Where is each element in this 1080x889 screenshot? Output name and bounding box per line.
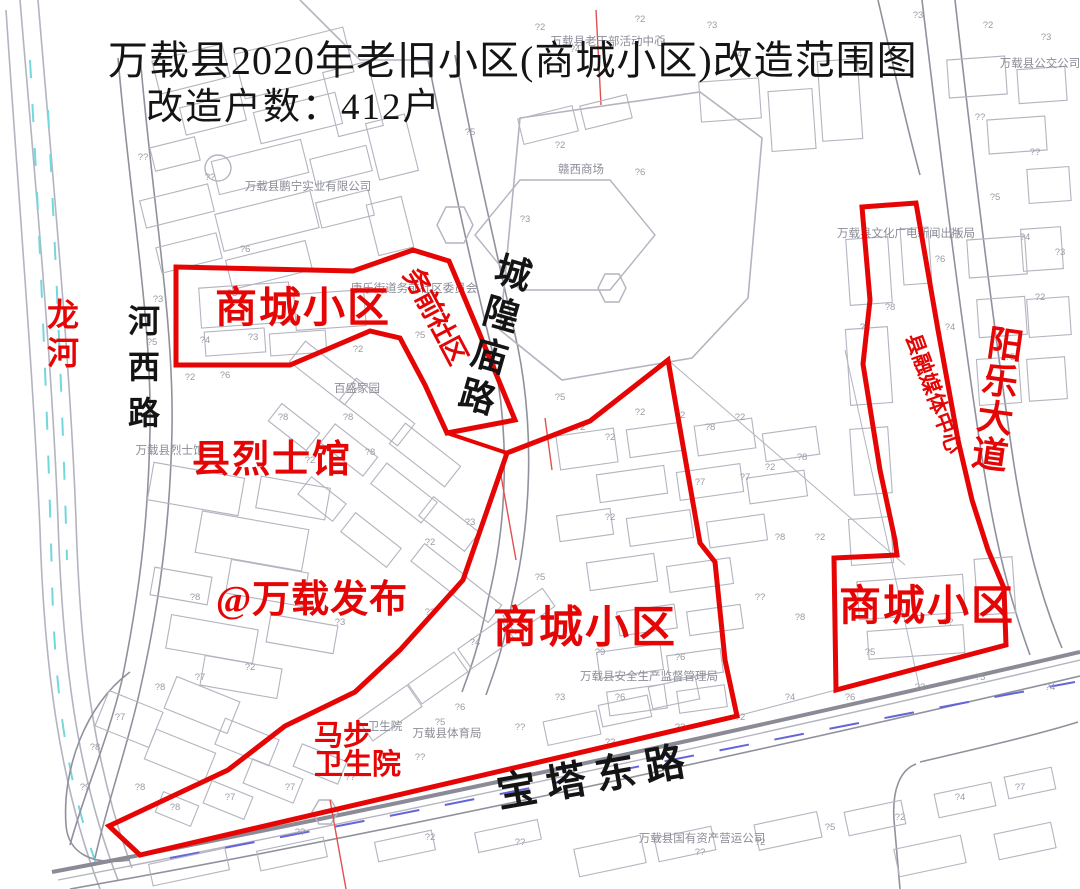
label-shangcheng-center: 商城小区 [493, 603, 677, 652]
cad-marker: ?2 [635, 14, 646, 25]
cad-marker: ?8 [90, 742, 101, 753]
building-outline [215, 191, 319, 252]
building-outline [706, 514, 767, 548]
cad-marker: ?? [695, 847, 706, 858]
cad-marker: ?2 [245, 662, 256, 673]
cad-marker: ?8 [775, 532, 786, 543]
building-outline [366, 196, 414, 255]
building-outline [371, 463, 437, 523]
cad-marker: ?5 [865, 647, 876, 658]
building-outline [677, 685, 728, 713]
label-shangcheng-nw: 商城小区 [215, 285, 391, 332]
cad-marker: ?7 [285, 782, 296, 793]
cad-marker: ?8 [135, 782, 146, 793]
cad-marker: ?2 [605, 512, 616, 523]
cad-marker: ?7 [695, 477, 706, 488]
building-outline [580, 95, 632, 130]
label-weishengyuan-gray: 卫生院 [368, 719, 403, 733]
cad-marker: ?4 [470, 637, 481, 648]
building-outline [699, 78, 762, 122]
label-mabu-line2: 卫生院 [314, 747, 401, 781]
building-outline [323, 61, 384, 136]
cad-marker: ?2 [353, 344, 364, 355]
cad-marker: ?7 [740, 472, 751, 483]
label-bus-company: 万载县公交公司 [1000, 56, 1080, 70]
cad-marker: ?7 [195, 672, 206, 683]
label-longhe-river: 龙河 [47, 297, 79, 371]
building-outline [626, 422, 683, 457]
label-hexi-road: 河西路 [128, 303, 161, 431]
map-canvas: 万载县鹏宁实业有限公司赣西商场万载县老干部活动中心万载县文化广电新闻出版局万载县… [0, 0, 1080, 889]
cad-marker: ?4 [570, 44, 581, 55]
building-outline [894, 835, 966, 877]
cad-marker: ?3 [465, 517, 476, 528]
cad-marker: ?6 [845, 692, 856, 703]
cad-marker: ?6 [935, 254, 946, 265]
building-outline [215, 718, 279, 766]
building-outline [543, 711, 601, 746]
cad-marker: ?4 [945, 322, 956, 333]
cad-marker: ?5 [555, 392, 566, 403]
cad-marker: ?7 [225, 792, 236, 803]
cad-marker: ?2 [425, 832, 436, 843]
building-outline [152, 44, 230, 94]
cad-marker: ?4 [1020, 232, 1031, 243]
cad-marker: ?2 [1035, 292, 1046, 303]
cad-marker: ?2 [895, 812, 906, 823]
cad-marker: ?2 [915, 682, 926, 693]
cad-marker: ?4 [785, 692, 796, 703]
longhe-river-lines [6, 0, 132, 889]
label-state-assets-company: 万载县国有资产营运公司 [639, 831, 766, 845]
building-outline [310, 145, 373, 184]
cad-marker: ?6 [240, 244, 251, 255]
label-mabu-line1: 马步 [314, 719, 372, 752]
cad-marker: ?4 [955, 792, 966, 803]
building-outline [850, 427, 893, 495]
label-laoganbu-center: 万载县老干部活动中心 [551, 34, 666, 48]
cad-marker: ?8 [705, 422, 716, 433]
cad-marker: ?3 [1041, 32, 1052, 43]
building-outline [150, 137, 200, 171]
building-outline [586, 553, 657, 590]
cad-marker: ?3 [555, 692, 566, 703]
cad-marker: ?6 [675, 652, 686, 663]
cad-marker: ?8 [190, 592, 201, 603]
building-outline [366, 114, 419, 180]
cad-marker: ?8 [343, 412, 354, 423]
building-outline [200, 655, 282, 698]
label-yangle-avenue: 阳乐大道 [969, 323, 1026, 478]
building-outline [195, 511, 309, 571]
label-pengning-company: 万载县鹏宁实业有限公司 [245, 179, 372, 193]
cad-marker: ?? [515, 837, 526, 848]
cad-marker: ?? [415, 752, 426, 763]
building-outline [947, 56, 1008, 98]
cad-marker: ?? [755, 592, 766, 603]
red-area-labels: 商城小区商城小区商城小区县烈士馆@万载发布马步卫生院务前社区县融媒体中心龙河阳乐… [47, 262, 1026, 781]
label-chenghuangmiao-road: 城隍庙路 [455, 249, 537, 422]
cad-marker: ?2 [735, 412, 746, 423]
cad-marker: ?8 [797, 452, 808, 463]
cad-marker: ?4 [1045, 682, 1056, 693]
cad-marker: ?5 [975, 672, 986, 683]
building-outline [1017, 66, 1067, 103]
building-outline [574, 835, 646, 877]
cad-marker: ?2 [983, 20, 994, 31]
cad-marker: ?5 [535, 572, 546, 583]
cad-marker: ?6 [455, 702, 466, 713]
building-outline [817, 59, 862, 142]
building-outline [316, 190, 375, 228]
cad-marker: ?2 [605, 432, 616, 443]
label-sports-bureau: 万载县体育局 [413, 726, 482, 740]
cad-marker: ?2 [635, 407, 646, 418]
cad-marker: ?7 [115, 712, 126, 723]
building-outline [1027, 357, 1068, 402]
boundary-connector [447, 433, 507, 453]
building-outline [694, 418, 756, 456]
river-water-dashes [30, 60, 102, 880]
building-outline [596, 465, 667, 502]
cad-marker: ?5 [415, 330, 426, 341]
cad-marker: ?2 [815, 532, 826, 543]
cad-marker: ?2 [755, 837, 766, 848]
label-watermark-wanzaifabu: @万载发布 [216, 579, 408, 621]
building-outline [1004, 767, 1056, 798]
building-outline [967, 236, 1028, 278]
cad-marker: ?7 [1015, 782, 1026, 793]
building-outline [180, 93, 247, 135]
building-outline [1027, 167, 1071, 204]
building-outline [762, 426, 819, 461]
renovation-map: 万载县鹏宁实业有限公司赣西商场万载县老干部活动中心万载县文化广电新闻出版局万载县… [0, 0, 1080, 889]
cad-marker: ?? [295, 827, 306, 838]
cad-marker: ?5 [990, 192, 1001, 203]
building-outline [144, 729, 215, 783]
building-outline [140, 184, 215, 228]
cad-marker: ?6 [635, 167, 646, 178]
cad-marker: ?4 [950, 227, 961, 238]
label-baisheng-garden: 百盛家园 [334, 381, 380, 395]
label-ganxi-mall: 赣西商场 [558, 162, 604, 176]
cad-marker: ?5 [435, 717, 446, 728]
cad-marker: ?2 [425, 537, 436, 548]
building-outline [341, 513, 401, 568]
building-outline [687, 604, 744, 635]
cad-marker: ?5 [465, 127, 476, 138]
cad-marker: ?8 [365, 447, 376, 458]
cad-marker: ?3 [707, 20, 718, 31]
cad-marker: ?2 [185, 372, 196, 383]
building-outline [667, 558, 734, 593]
cad-marker: ?? [515, 722, 526, 733]
building-outline [475, 820, 542, 853]
label-safety-bureau: 万载县安全生产监督管理局 [580, 669, 718, 683]
cad-marker: ?6 [615, 692, 626, 703]
building-outline [408, 652, 468, 704]
label-lieshiguan: 县烈士馆 [192, 439, 352, 481]
cad-marker: ?? [1030, 147, 1041, 158]
cad-marker: ?8 [170, 802, 181, 813]
cad-marker: ?4 [200, 335, 211, 346]
cad-marker: ?8 [278, 412, 289, 423]
cad-marker: ?3 [520, 214, 531, 225]
cad-marker: ?? [205, 172, 216, 183]
cad-marker: ?? [975, 112, 986, 123]
building-outline [234, 27, 354, 99]
cad-marker: ?3 [1055, 247, 1066, 258]
cad-marker: ?4 [732, 49, 743, 60]
cad-marker: ?6 [220, 370, 231, 381]
cad-marker: ?3 [913, 10, 924, 21]
cad-marker: ?8 [795, 612, 806, 623]
cad-marker: ?5 [825, 822, 836, 833]
cad-marker: ?3 [248, 332, 259, 343]
cad-marker: ?2 [555, 140, 566, 151]
building-outline [1027, 297, 1072, 338]
label-rongmei-center: 县融媒体中心 [901, 330, 967, 457]
building-outline [994, 822, 1056, 859]
cad-marker: ?? [138, 152, 149, 163]
building-outline [166, 615, 259, 664]
building-outline [626, 510, 693, 547]
building-outline [768, 89, 816, 152]
cad-marker: ?8 [885, 302, 896, 313]
cad-marker: ?2 [765, 462, 776, 473]
cad-marker: ?8 [155, 682, 166, 693]
cad-marker: ?2 [535, 22, 546, 33]
cad-marker: ?9 [80, 782, 91, 793]
cad-marker: ?5 [655, 34, 666, 45]
label-shangcheng-east: 商城小区 [839, 583, 1015, 630]
building-outline [746, 470, 807, 504]
